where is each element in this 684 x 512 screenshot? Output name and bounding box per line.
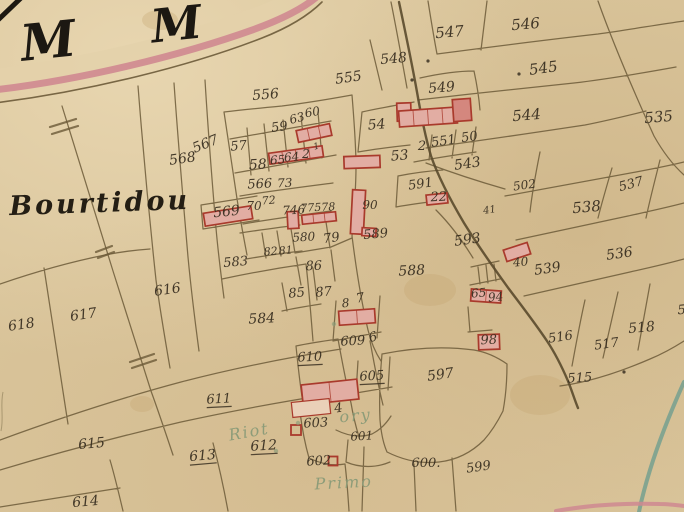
parcel-label: 600. (412, 456, 441, 471)
parcel-label: 602 (306, 453, 332, 469)
parcel-label: 2 (417, 139, 426, 154)
green-dot (332, 322, 336, 326)
parcel-label: 580 (292, 229, 316, 244)
parcel-label: 22 (429, 190, 447, 206)
parcel-label: 70 (246, 199, 262, 213)
parcel-label: 610 (297, 349, 323, 365)
parcel-label: 556 (252, 86, 280, 104)
parcel-label: 60 (304, 104, 322, 121)
parcel-label: 613 (189, 447, 217, 465)
green-field-label: ory (339, 405, 373, 427)
parcel-label: 605 (359, 368, 385, 384)
parcel-label: 73 (277, 176, 293, 191)
parcel-label: 40 (511, 254, 529, 269)
parcel-label: 603 (303, 415, 329, 431)
parcel-label: 77578 (300, 200, 336, 215)
parcel-label: 518 (628, 319, 656, 337)
parcel-label: 59 (270, 119, 288, 136)
building (399, 107, 458, 127)
parcel-label: 584 (248, 310, 276, 327)
parcel-label: 86 (305, 259, 322, 275)
parcel-label: 2 (301, 147, 310, 161)
building-rect (344, 155, 380, 168)
parcel-label: 615 (78, 435, 106, 453)
parcel-label: 81 (278, 243, 293, 257)
parcel-label: 94 (487, 289, 503, 304)
building (344, 155, 380, 168)
parcel-label: 57 (230, 138, 249, 154)
parcel-label: 546 (511, 14, 542, 34)
parcel-label: 538 (572, 197, 602, 217)
place-name-label: Bourtidou (8, 185, 191, 222)
parcel-label: 85 (288, 285, 306, 301)
parcel-label: 72 (261, 193, 276, 207)
building (452, 98, 471, 121)
ink-dot (410, 78, 413, 81)
cadastral-map: 5565685675759636058656421566735697072746… (0, 0, 684, 512)
parcel-label: 544 (512, 105, 542, 125)
parcel-label: 515 (567, 370, 593, 386)
parcel-label: 53 (390, 147, 409, 164)
ink-dot (517, 72, 520, 75)
parcel-label: 65 (470, 285, 486, 300)
parcel-label: 58 (248, 157, 267, 174)
parcel-label: 64 (283, 149, 299, 164)
parcel-label: 549 (428, 79, 456, 97)
parcel-label: 98 (480, 333, 497, 349)
parcel-label: 548 (380, 50, 408, 68)
parcel-label: 535 (644, 107, 674, 127)
section-letter: M (146, 0, 206, 54)
parcel-label: 566 (247, 176, 273, 192)
parcel-label: 50 (460, 129, 478, 146)
parcel-label: 79 (322, 230, 340, 247)
paper-stain (510, 375, 570, 415)
parcel-label: 87 (315, 284, 334, 300)
parcel-label: 614 (72, 493, 100, 511)
building (339, 309, 376, 325)
parcel-label: 569 (212, 203, 240, 222)
green-dot (296, 421, 300, 425)
parcel-label: 611 (206, 391, 232, 407)
parcel-label: 41 (482, 204, 497, 217)
parcel-label: 54 (367, 116, 386, 133)
ink-dot (426, 59, 429, 62)
parcel-label: 609 (340, 333, 366, 349)
parcel-label: 90 (362, 198, 378, 212)
green-field-label: Primo (313, 471, 373, 493)
parcel-label: 601 (350, 428, 374, 443)
section-letter: M (16, 8, 81, 73)
parcel-label: 583 (223, 254, 249, 271)
ink-dot (622, 370, 625, 373)
parcel-label: 589 (363, 226, 389, 243)
parcel-label: 547 (435, 22, 466, 42)
map-stage: 5565685675759636058656421566735697072746… (0, 0, 684, 512)
paper-stain (130, 396, 154, 412)
building-rect (452, 98, 471, 121)
parcel-label: 5 (677, 303, 684, 319)
parcel-label: 588 (398, 262, 426, 279)
parcel-label: 82 (263, 244, 278, 258)
